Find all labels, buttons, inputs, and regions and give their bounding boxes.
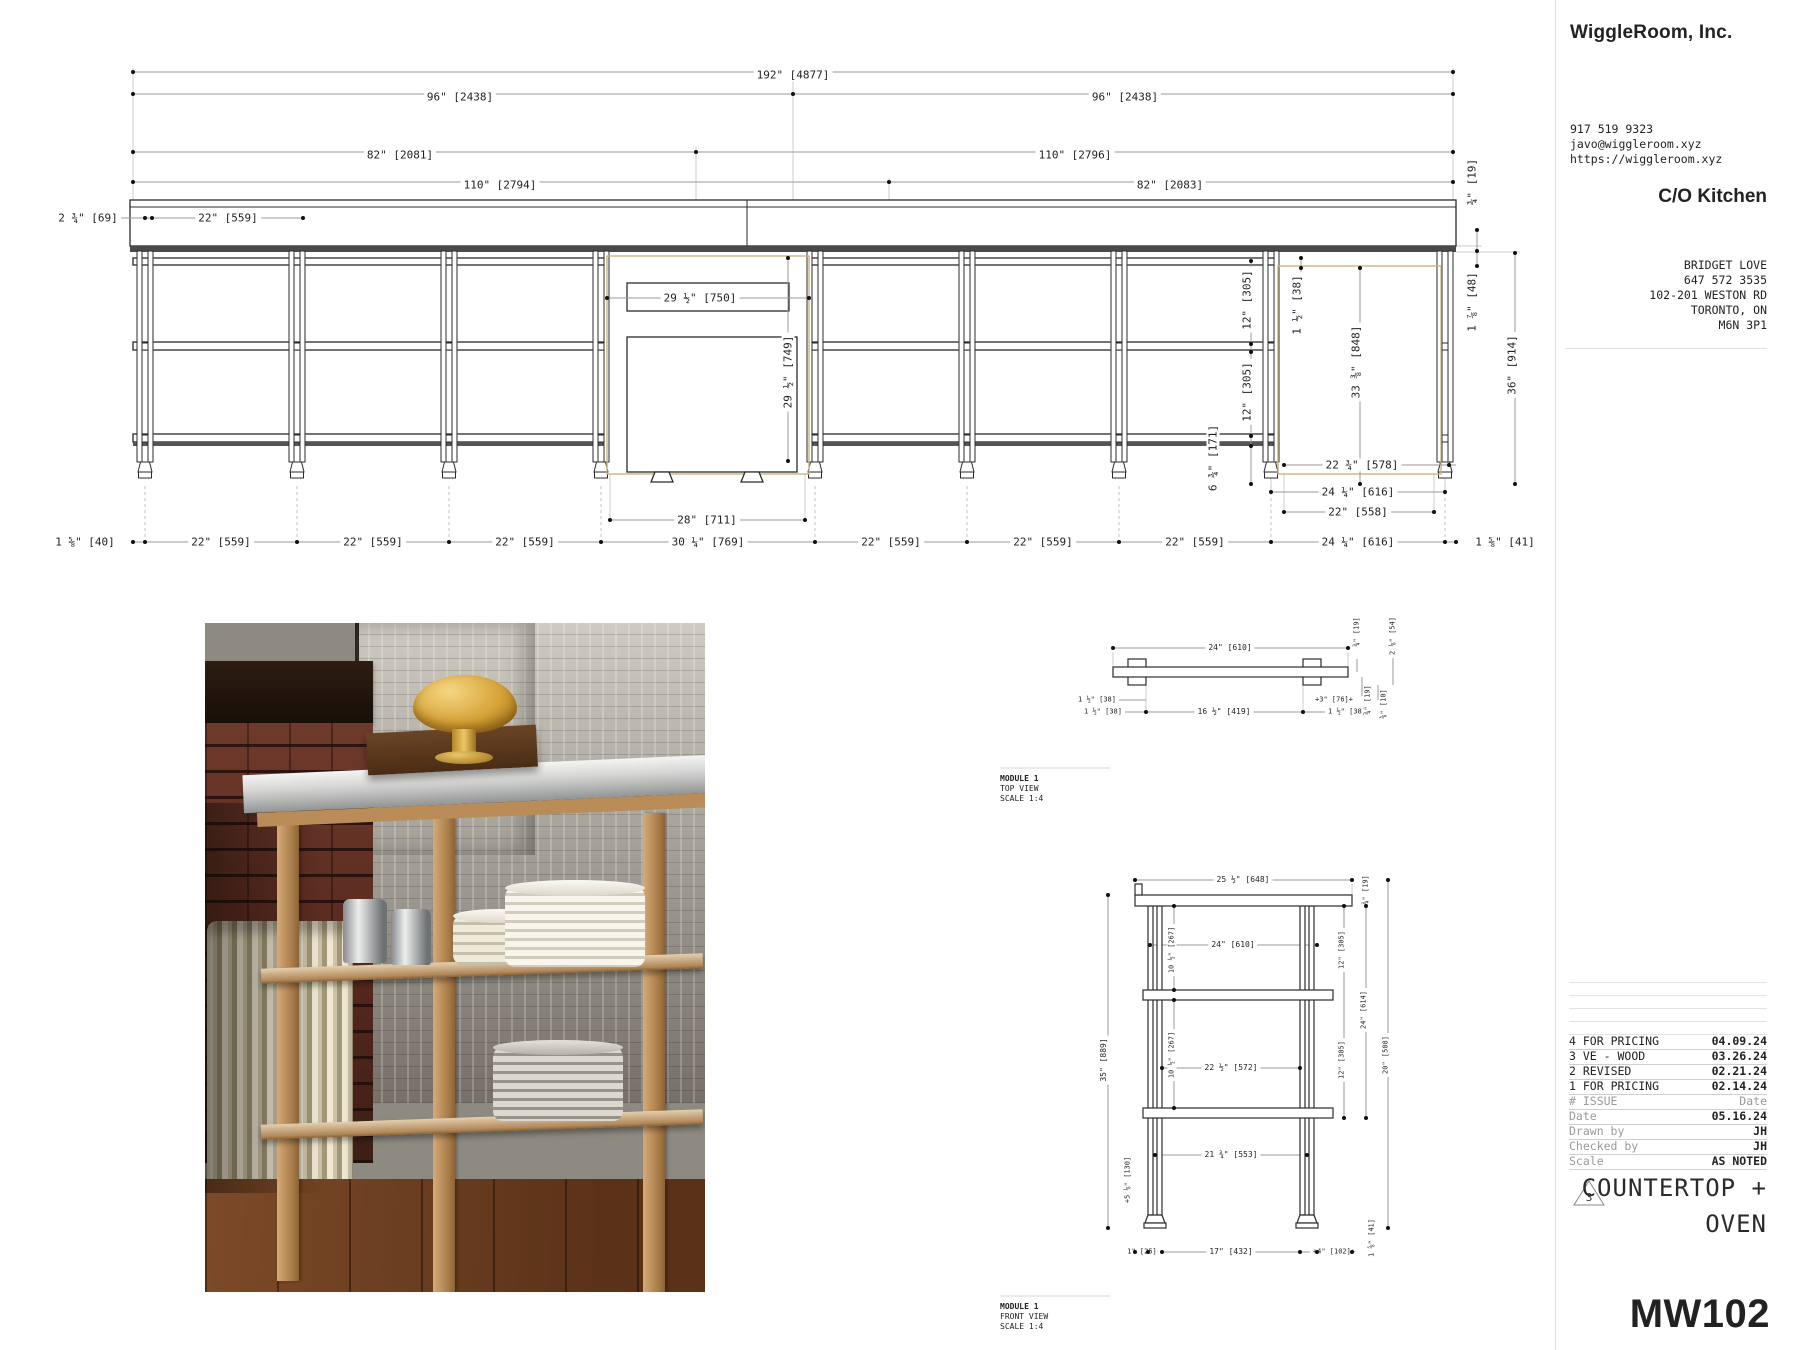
dim-label: 1 ½" [38] bbox=[1081, 708, 1125, 717]
dim-label: ¾" [19] bbox=[1362, 872, 1371, 908]
dim-tick bbox=[1358, 266, 1362, 270]
dim-tick bbox=[1144, 710, 1148, 714]
dim-tick bbox=[1298, 1250, 1302, 1254]
dim-label: TOP VIEW bbox=[1000, 784, 1042, 794]
dim-tick bbox=[1153, 1153, 1157, 1157]
dim-label: 28" [711] bbox=[674, 514, 740, 527]
photo-plate-stack bbox=[505, 887, 645, 967]
meta-label: Date bbox=[1569, 1109, 1597, 1123]
dim-tick bbox=[1269, 540, 1273, 544]
dim-label: 24 ¼" [616] bbox=[1319, 536, 1398, 549]
dim-label: ⅜" [10] bbox=[1380, 686, 1389, 722]
revision-table: 4 FOR PRICING 04.09.24 3 VE - WOOD 03.26… bbox=[1569, 970, 1767, 1170]
dim-tick bbox=[301, 216, 305, 220]
dim-label: ¾" [19] bbox=[1364, 682, 1373, 718]
dim-tick bbox=[143, 540, 147, 544]
revision-label: REVISED bbox=[1583, 1064, 1631, 1078]
dim-tick bbox=[1451, 150, 1455, 154]
dim-tick bbox=[131, 540, 135, 544]
dim-tick bbox=[1358, 482, 1362, 486]
dim-label: MODULE 1 bbox=[1000, 774, 1042, 784]
dim-tick bbox=[1106, 893, 1110, 897]
sheet-title-line1: COUNTERTOP + bbox=[1569, 1174, 1767, 1202]
meta-row-checked-by: Checked by JH bbox=[1569, 1140, 1767, 1155]
drawing-code: MW102 bbox=[1565, 1292, 1770, 1337]
photo-canister bbox=[343, 899, 387, 963]
photo-gray-plate-stack bbox=[493, 1047, 623, 1121]
dim-label: SCALE 1:4 bbox=[1000, 794, 1046, 804]
photo-canister bbox=[391, 909, 431, 965]
dim-label: SCALE 1:4 bbox=[1000, 1322, 1046, 1332]
revision-number: 4 bbox=[1569, 1034, 1576, 1048]
dim-tick bbox=[131, 150, 135, 154]
dim-tick bbox=[1160, 1066, 1164, 1070]
dim-label: 16 ½" [419] bbox=[1195, 707, 1254, 717]
dim-label: 22 ½" [572] bbox=[1202, 1063, 1261, 1073]
title-block-rule bbox=[1565, 348, 1767, 349]
dim-label: 22" [559] bbox=[188, 536, 254, 549]
revision-row: 2 REVISED 02.21.24 bbox=[1569, 1065, 1767, 1080]
dim-label: 12" [305] bbox=[1338, 1038, 1347, 1082]
photo-amber-glass-bowl bbox=[413, 675, 517, 733]
dim-tick bbox=[1475, 264, 1479, 268]
revision-empty-row bbox=[1569, 1009, 1767, 1022]
meta-label: Scale bbox=[1569, 1154, 1604, 1168]
dim-label: 24" [610] bbox=[1205, 643, 1254, 653]
revision-empty-row bbox=[1569, 996, 1767, 1009]
dim-label: 96" [2438] bbox=[424, 91, 496, 104]
dim-label: 12" [305] bbox=[1338, 928, 1347, 972]
title-block-divider bbox=[1555, 0, 1556, 1350]
revision-date: 02.14.24 bbox=[1712, 1079, 1767, 1093]
dim-label: +5 ⅛" [130] bbox=[1124, 1154, 1133, 1206]
client-name: BRIDGET LOVE bbox=[1569, 258, 1767, 273]
revision-number: 3 bbox=[1569, 1049, 1576, 1063]
dim-tick bbox=[694, 150, 698, 154]
dim-label: 1 ⅝" [41] bbox=[1472, 536, 1538, 549]
dim-tick bbox=[1364, 904, 1368, 908]
dim-tick bbox=[1249, 350, 1253, 354]
meta-row-drawn-by: Drawn by JH bbox=[1569, 1125, 1767, 1140]
dim-tick bbox=[1133, 878, 1137, 882]
client-phone: 647 572 3535 bbox=[1569, 273, 1767, 288]
dim-tick bbox=[1305, 1153, 1309, 1157]
dim-label: 192" [4877] bbox=[754, 69, 833, 82]
dim-label: 24" [614] bbox=[1360, 988, 1369, 1032]
dim-tick bbox=[813, 540, 817, 544]
dim-label: 110" [2796] bbox=[1036, 149, 1115, 162]
dim-label: 17" [432] bbox=[1206, 1247, 1255, 1257]
project-title: C/O Kitchen bbox=[1569, 186, 1767, 208]
dim-label: 82" [2081] bbox=[364, 149, 436, 162]
dim-label: ¾" [19] bbox=[1353, 614, 1362, 650]
revision-label: FOR PRICING bbox=[1583, 1034, 1659, 1048]
module1-top-view bbox=[1113, 659, 1348, 685]
dim-tick bbox=[1249, 259, 1253, 263]
dim-label: 2 ¾" [69] bbox=[55, 212, 121, 225]
dim-tick bbox=[143, 216, 147, 220]
meta-value: JH bbox=[1753, 1139, 1767, 1153]
dim-label: 20" [508] bbox=[1382, 1033, 1391, 1077]
company-phone: 917 519 9323 bbox=[1570, 122, 1722, 137]
dim-tick bbox=[1111, 646, 1115, 650]
meta-value: 05.16.24 bbox=[1712, 1109, 1767, 1123]
dim-label: 36" [914] bbox=[1506, 332, 1519, 398]
dim-label: 22" [559] bbox=[195, 212, 261, 225]
dim-tick bbox=[1298, 1066, 1302, 1070]
module-label-rules bbox=[1000, 768, 1110, 1296]
dim-label: 22" [559] bbox=[858, 536, 924, 549]
dim-tick bbox=[1513, 251, 1517, 255]
dim-label: MODULE 1 bbox=[1000, 1302, 1042, 1312]
dim-tick bbox=[1106, 1226, 1110, 1230]
dim-label: 1" [25] bbox=[1124, 1248, 1160, 1257]
dim-tick bbox=[1451, 70, 1455, 74]
dim-tick bbox=[887, 180, 891, 184]
dim-label: 29 ½" [750] bbox=[661, 292, 740, 305]
dim-tick bbox=[605, 296, 609, 300]
meta-label: Drawn by bbox=[1569, 1124, 1624, 1138]
dim-label: 22" [558] bbox=[1325, 506, 1391, 519]
dim-tick bbox=[1350, 878, 1354, 882]
dim-tick bbox=[1346, 646, 1350, 650]
dim-tick bbox=[1315, 1250, 1319, 1254]
revision-date: 04.09.24 bbox=[1712, 1034, 1767, 1048]
issue-header-row: # ISSUE Date bbox=[1569, 1095, 1767, 1110]
dim-tick bbox=[1282, 463, 1286, 467]
dim-tick bbox=[1443, 540, 1447, 544]
dim-tick bbox=[1301, 710, 1305, 714]
revision-number: 2 bbox=[1569, 1064, 1576, 1078]
dim-label: 96" [2438] bbox=[1089, 91, 1161, 104]
sheet-title: COUNTERTOP + OVEN bbox=[1569, 1174, 1767, 1238]
client-address: 102-201 WESTON RD bbox=[1569, 288, 1767, 303]
dim-label: 2 ⅛" [54] bbox=[1389, 614, 1398, 658]
dim-label: +3" [76]+ bbox=[1312, 696, 1356, 705]
dim-tick bbox=[1342, 1116, 1346, 1120]
dim-tick bbox=[131, 92, 135, 96]
dim-tick bbox=[1451, 92, 1455, 96]
client-block: BRIDGET LOVE 647 572 3535 102-201 WESTON… bbox=[1569, 258, 1767, 333]
client-city: TORONTO, ON bbox=[1569, 303, 1767, 318]
issue-value: Date bbox=[1739, 1094, 1767, 1108]
photo-table-leg bbox=[277, 811, 299, 1281]
revision-row: 3 VE - WOOD 03.26.24 bbox=[1569, 1050, 1767, 1065]
dim-tick bbox=[1315, 943, 1319, 947]
revision-empty-row bbox=[1569, 983, 1767, 996]
dim-tick bbox=[1172, 988, 1176, 992]
revision-label: VE - WOOD bbox=[1583, 1049, 1645, 1063]
dim-label: 22 ¾" [578] bbox=[1323, 459, 1402, 472]
dim-tick bbox=[1443, 490, 1447, 494]
revision-empty-row bbox=[1569, 970, 1767, 983]
dim-tick bbox=[1249, 434, 1253, 438]
dim-tick bbox=[1432, 510, 1436, 514]
dim-tick bbox=[1269, 490, 1273, 494]
dim-tick bbox=[1172, 904, 1176, 908]
dim-tick bbox=[131, 70, 135, 74]
dim-tick bbox=[447, 540, 451, 544]
dim-label: 33 ⅜" [848] bbox=[1350, 323, 1363, 402]
dim-tick bbox=[131, 180, 135, 184]
dim-label: 10 ½" [267] bbox=[1168, 924, 1177, 976]
dim-tick bbox=[1364, 1116, 1368, 1120]
dim-tick bbox=[1299, 256, 1303, 260]
dim-label: 1 ⅝" [41] bbox=[1368, 1216, 1377, 1260]
dim-label: 22" [559] bbox=[1162, 536, 1228, 549]
company-name: WiggleRoom, Inc. bbox=[1570, 22, 1732, 44]
dim-tick bbox=[608, 518, 612, 522]
reference-photo bbox=[205, 623, 705, 1292]
meta-value: AS NOTED bbox=[1712, 1154, 1767, 1168]
dim-label: 30 ¼" [769] bbox=[669, 536, 748, 549]
dim-label: 10 ½" [267] bbox=[1168, 1029, 1177, 1081]
dim-tick bbox=[599, 540, 603, 544]
revision-label: FOR PRICING bbox=[1583, 1079, 1659, 1093]
dim-label: 29 ½" [749] bbox=[782, 333, 795, 412]
dim-tick bbox=[786, 256, 790, 260]
dim-tick bbox=[1249, 482, 1253, 486]
dim-label: 1 ⅝" [40] bbox=[52, 536, 118, 549]
dim-tick bbox=[1249, 444, 1253, 448]
dim-label: 1 ½" [38] bbox=[1325, 708, 1369, 717]
dim-label: 12" [305] bbox=[1241, 267, 1254, 333]
dim-tick bbox=[1475, 249, 1479, 253]
dim-tick bbox=[1133, 1250, 1137, 1254]
photo-bowl-foot bbox=[435, 751, 493, 764]
dim-tick bbox=[1249, 342, 1253, 346]
dim-label: 82" [2083] bbox=[1134, 179, 1206, 192]
revision-date: 03.26.24 bbox=[1712, 1049, 1767, 1063]
dim-label: 22" [559] bbox=[340, 536, 406, 549]
dim-tick bbox=[1148, 943, 1152, 947]
meta-label: Checked by bbox=[1569, 1139, 1638, 1153]
dim-tick bbox=[965, 540, 969, 544]
drawing-sheet: WiggleRoom, Inc. 917 519 9323 javo@wiggl… bbox=[0, 0, 1800, 1350]
dim-label: 110" [2794] bbox=[461, 179, 540, 192]
photo-table-leg bbox=[643, 813, 665, 1292]
dim-tick bbox=[1386, 878, 1390, 882]
dim-tick bbox=[295, 540, 299, 544]
company-contact: 917 519 9323 javo@wiggleroom.xyz https:/… bbox=[1570, 122, 1722, 167]
oven-front bbox=[627, 283, 797, 482]
meta-row-scale: Scale AS NOTED bbox=[1569, 1155, 1767, 1170]
company-email[interactable]: javo@wiggleroom.xyz bbox=[1570, 137, 1722, 152]
dim-tick bbox=[803, 518, 807, 522]
revision-row: 1 FOR PRICING 02.14.24 bbox=[1569, 1080, 1767, 1095]
issue-label: # ISSUE bbox=[1569, 1094, 1617, 1108]
dim-label: 22" [559] bbox=[1010, 536, 1076, 549]
dim-label: FRONT VIEW bbox=[1000, 1312, 1051, 1322]
dim-tick bbox=[1386, 1226, 1390, 1230]
dim-tick bbox=[1299, 266, 1303, 270]
dim-tick bbox=[1172, 1106, 1176, 1110]
photo-wood-mantel bbox=[205, 661, 373, 723]
revision-date: 02.21.24 bbox=[1712, 1064, 1767, 1078]
dim-tick bbox=[1451, 180, 1455, 184]
photo-plate-top bbox=[505, 880, 645, 896]
photo-gray-plate-top bbox=[493, 1040, 623, 1055]
dim-tick bbox=[791, 92, 795, 96]
dim-tick bbox=[1475, 228, 1479, 232]
dim-tick bbox=[1342, 904, 1346, 908]
dim-tick bbox=[1117, 540, 1121, 544]
meta-value: JH bbox=[1753, 1124, 1767, 1138]
dim-label: 35" [889] bbox=[1099, 1035, 1109, 1084]
dim-tick bbox=[1172, 998, 1176, 1002]
dim-label: 1 ½" [38] bbox=[1291, 272, 1304, 338]
dim-tick bbox=[1350, 1250, 1354, 1254]
dim-label: 21 ¾" [553] bbox=[1202, 1150, 1261, 1160]
dim-tick bbox=[1146, 1250, 1150, 1254]
dim-label: 22" [559] bbox=[492, 536, 558, 549]
meta-row-date: Date 05.16.24 bbox=[1569, 1110, 1767, 1125]
dim-tick bbox=[1160, 1250, 1164, 1254]
sheet-title-line2: OVEN bbox=[1569, 1210, 1767, 1238]
dim-label: 24" [610] bbox=[1208, 940, 1257, 950]
revision-number: 1 bbox=[1569, 1079, 1576, 1093]
dim-tick bbox=[1513, 482, 1517, 486]
company-website[interactable]: https://wiggleroom.xyz bbox=[1570, 152, 1722, 167]
revision-row: 4 FOR PRICING 04.09.24 bbox=[1569, 1035, 1767, 1050]
client-postal: M6N 3P1 bbox=[1569, 318, 1767, 333]
dim-label: 1 ½" [38] bbox=[1075, 696, 1119, 705]
dim-label: 24 ¼" [616] bbox=[1319, 486, 1398, 499]
dim-label: 25 ½" [648] bbox=[1214, 875, 1273, 885]
dim-tick bbox=[786, 459, 790, 463]
dim-label: ¾" [19] bbox=[1466, 156, 1479, 208]
dim-label: 1 ⅞" [48] bbox=[1466, 269, 1479, 335]
dim-label: 12" [305] bbox=[1241, 359, 1254, 425]
dim-tick bbox=[1454, 540, 1458, 544]
dim-tick bbox=[1447, 463, 1451, 467]
dim-tick bbox=[1282, 510, 1286, 514]
dim-tick bbox=[807, 296, 811, 300]
dim-tick bbox=[150, 216, 154, 220]
photo-table-leg bbox=[433, 817, 455, 1292]
dim-label: 6 ¾" [171] bbox=[1207, 422, 1220, 494]
